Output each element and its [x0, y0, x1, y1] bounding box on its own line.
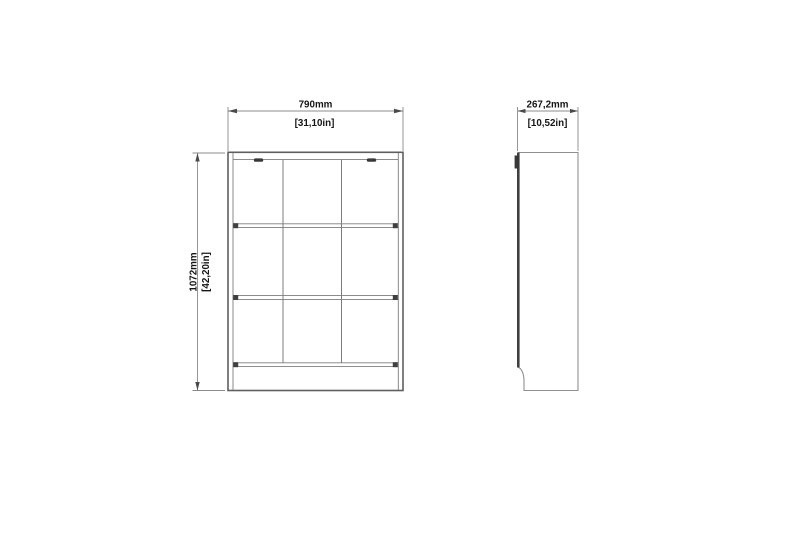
technical-drawing-page: 790mm [31,10in] 267,2mm [10,52in] 1072mm… [0, 0, 800, 533]
width-arrowhead-left [228, 109, 237, 113]
width-arrowhead-right [394, 109, 403, 113]
width-label-inches: [31,10in] [295, 118, 335, 129]
front-height-dimension: 1072mm [42,20in] [189, 153, 226, 391]
wall-anchor-fitting-right [367, 158, 376, 161]
height-label-mm: 1072mm [189, 252, 200, 292]
depth-arrowhead-left [518, 109, 526, 113]
bottom-shelf-left-end-cap [233, 362, 238, 367]
front-width-dimension: 790mm [31,10in] [228, 100, 403, 152]
depth-label-mm: 267,2mm [527, 100, 569, 111]
side-wall-anchor-fitting [515, 156, 520, 169]
depth-arrowhead-right [570, 109, 578, 113]
side-view [515, 153, 578, 391]
depth-label-inches: [10,52in] [528, 118, 568, 129]
side-profile-outline [518, 153, 578, 391]
height-label-inches: [42,20in] [201, 252, 212, 292]
drawing-svg: 790mm [31,10in] 267,2mm [10,52in] 1072mm… [0, 0, 800, 533]
shelf-2-right-end-cap [393, 295, 398, 300]
shelf-1-right-end-cap [393, 223, 398, 228]
shelf-1-left-end-cap [233, 223, 238, 228]
front-carcass-outline [228, 152, 403, 390]
side-depth-dimension: 267,2mm [10,52in] [518, 100, 579, 152]
bottom-shelf-right-end-cap [393, 362, 398, 367]
height-arrowhead-top [195, 153, 199, 162]
wall-anchor-fitting-left [254, 158, 263, 161]
width-label-mm: 790mm [299, 100, 333, 111]
height-arrowhead-bottom [195, 382, 199, 391]
shelf-2-left-end-cap [233, 295, 238, 300]
front-view [228, 152, 403, 390]
